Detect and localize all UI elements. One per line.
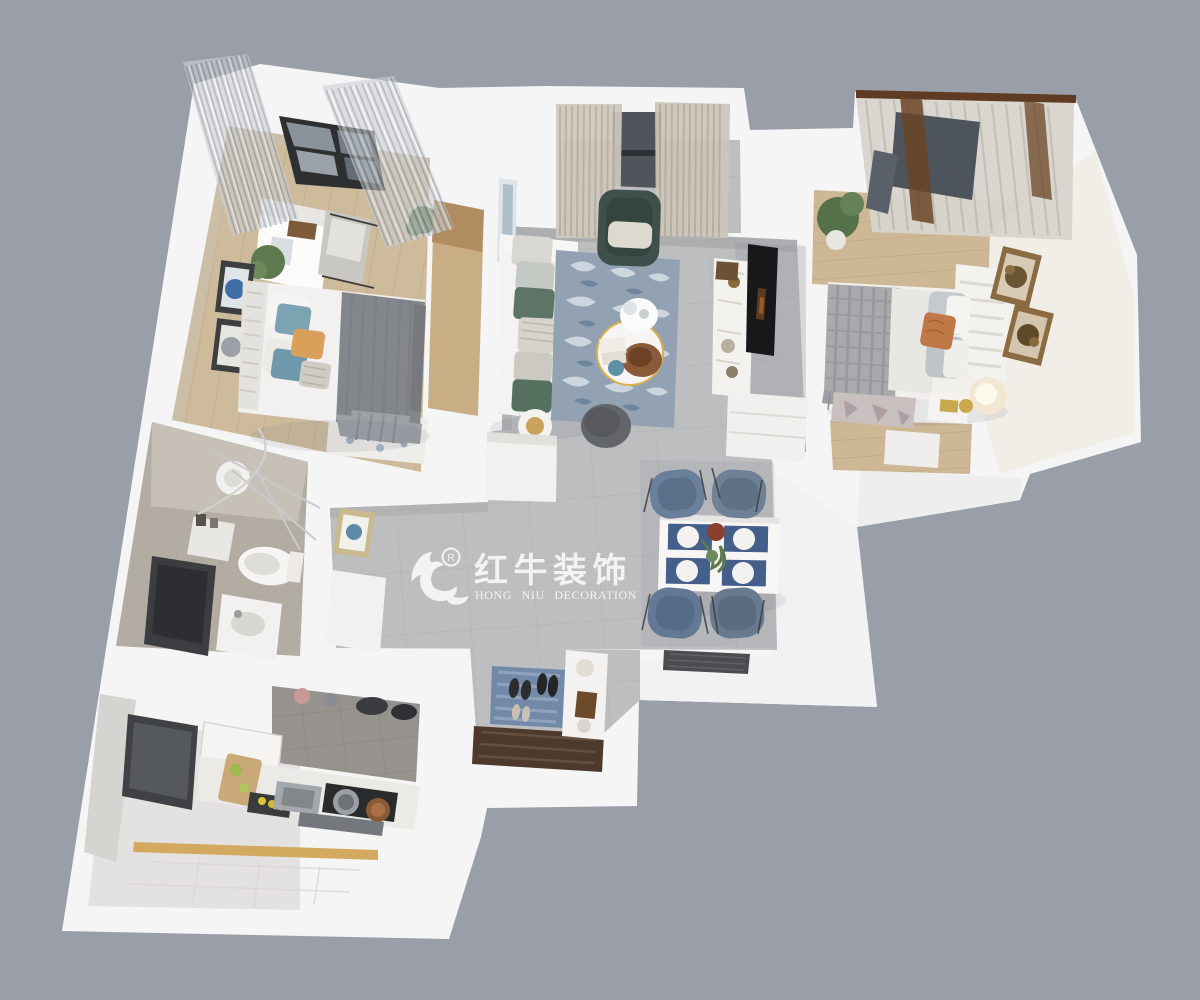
svg-text:红牛装饰: 红牛装饰 — [474, 552, 632, 590]
svg-text:R: R — [447, 552, 455, 564]
svg-text:HONG NIU DECORATION: HONG NIU DECORATION — [475, 588, 637, 602]
